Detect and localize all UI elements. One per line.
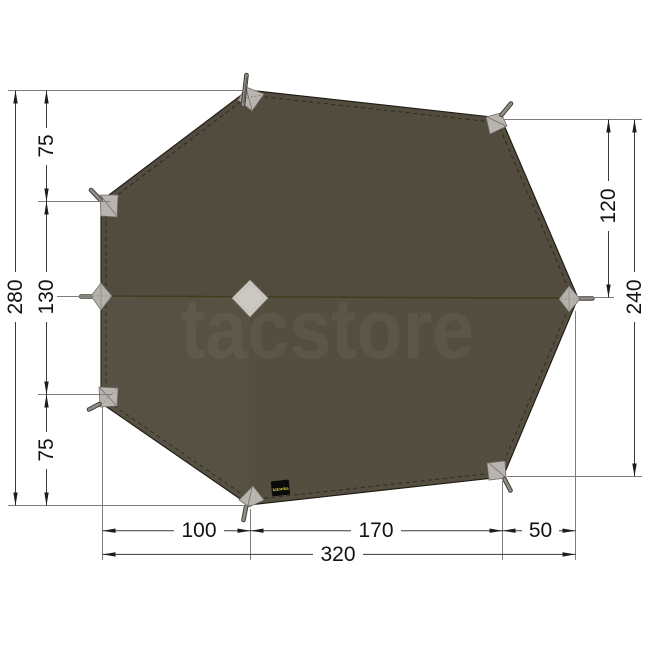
svg-text:75: 75 <box>35 438 58 461</box>
svg-text:100: 100 <box>181 519 216 542</box>
svg-text:240: 240 <box>623 279 646 314</box>
svg-text:280: 280 <box>4 279 27 314</box>
svg-text:130: 130 <box>35 279 58 314</box>
svg-text:120: 120 <box>597 188 620 223</box>
svg-text:75: 75 <box>35 134 58 157</box>
svg-text:50: 50 <box>529 519 552 542</box>
svg-text:170: 170 <box>358 519 393 542</box>
svg-text:320: 320 <box>320 543 355 566</box>
